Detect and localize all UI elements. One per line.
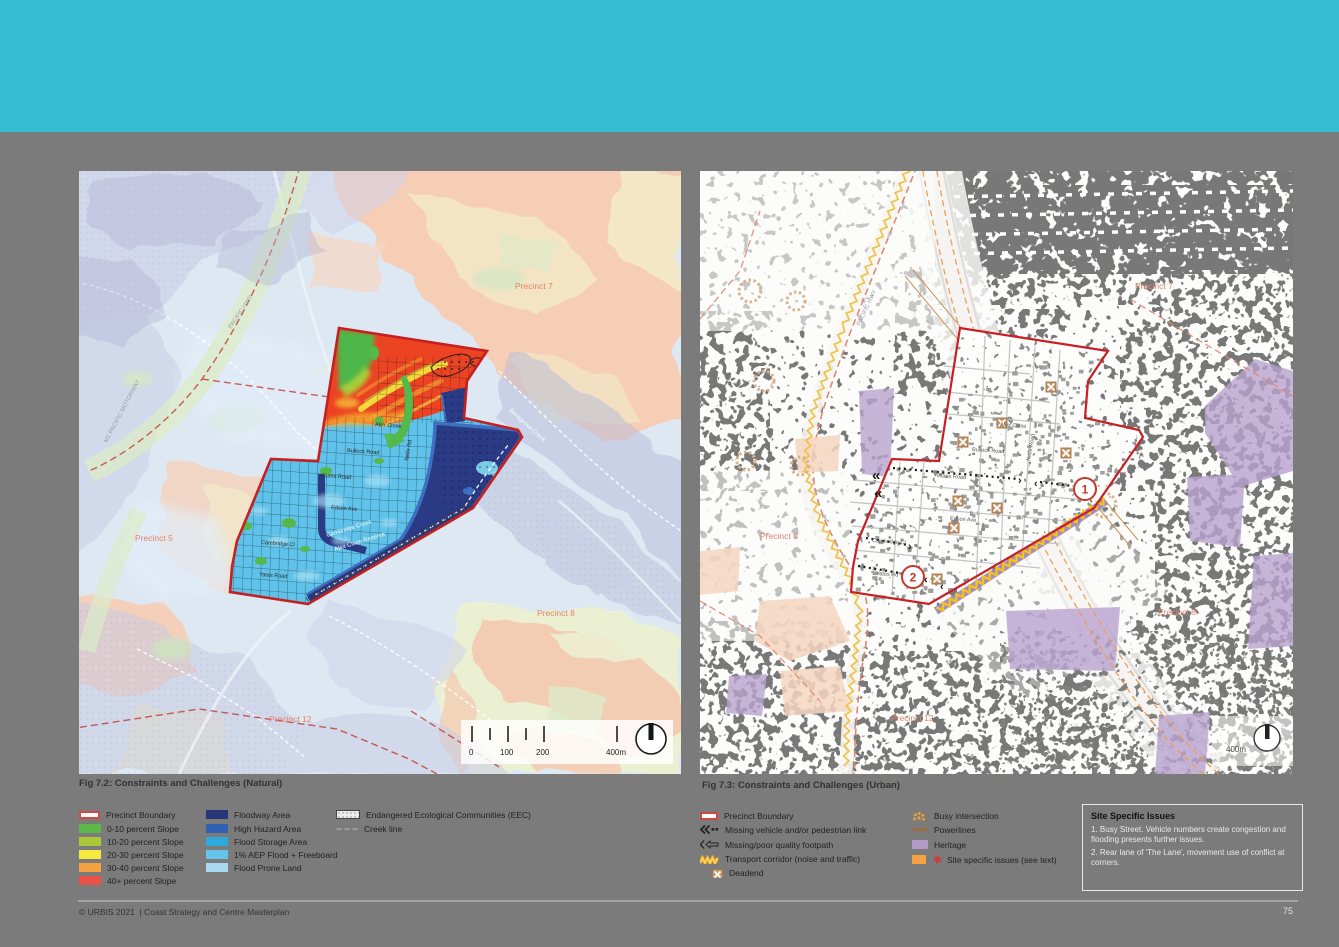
svg-text:Precinct 7: Precinct 7 bbox=[1135, 281, 1173, 291]
svg-text:400m: 400m bbox=[1226, 745, 1246, 754]
svg-text:Precinct 5: Precinct 5 bbox=[135, 533, 173, 543]
svg-text:Precinct 5: Precinct 5 bbox=[760, 531, 798, 541]
svg-text:2: 2 bbox=[910, 571, 917, 585]
svg-text:‹: ‹ bbox=[1034, 478, 1038, 490]
svg-text:Precinct 8: Precinct 8 bbox=[1158, 607, 1196, 617]
svg-text:Precinct 8: Precinct 8 bbox=[537, 608, 575, 618]
svg-text:«: « bbox=[872, 467, 880, 484]
svg-text:Precinct 12: Precinct 12 bbox=[891, 713, 934, 723]
svg-text:100: 100 bbox=[500, 748, 514, 757]
svg-text:0: 0 bbox=[469, 748, 474, 757]
svg-text:Precinct 12: Precinct 12 bbox=[269, 714, 312, 724]
svg-text:›: › bbox=[1018, 475, 1022, 487]
svg-text:1: 1 bbox=[1082, 483, 1089, 497]
svg-text:Precinct 7: Precinct 7 bbox=[515, 281, 553, 291]
svg-text:›: › bbox=[908, 541, 912, 553]
svg-text:«: « bbox=[874, 485, 882, 502]
svg-text:200: 200 bbox=[536, 748, 550, 757]
svg-text:400m: 400m bbox=[606, 748, 626, 757]
